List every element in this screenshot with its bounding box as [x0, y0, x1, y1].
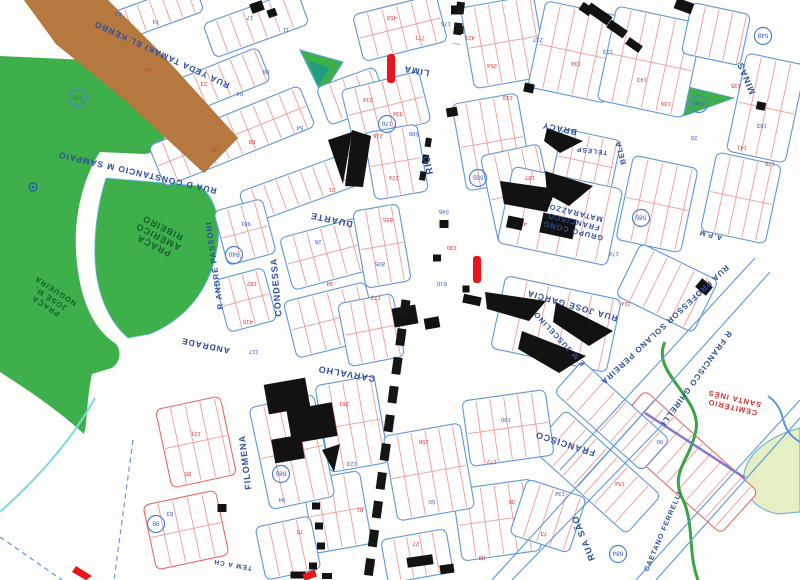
- building-footprint: [463, 286, 470, 293]
- block-id-badge: 548: [755, 28, 772, 45]
- building-footprint: [462, 294, 481, 307]
- block-id-number: 548: [757, 31, 769, 39]
- lot-number: 21: [328, 186, 336, 192]
- lot-number: 114: [620, 300, 631, 307]
- block-id-number: 685: [275, 469, 287, 477]
- area-label-cemiterio: CEMITÉRIOSANTA INÊS: [705, 388, 762, 418]
- lot-number: 187: [524, 174, 535, 181]
- lot-number: 81: [356, 506, 364, 512]
- lot-number: 20: [690, 134, 698, 140]
- lot-number: 123: [602, 48, 613, 55]
- lot-number: 47: [210, 146, 218, 152]
- city-block: [143, 490, 229, 570]
- lot-number: 216: [372, 132, 383, 139]
- lot-number: 50: [428, 498, 436, 504]
- lot-number: 175: [440, 20, 451, 27]
- lot-number: 123: [346, 460, 357, 467]
- lot-number: 224: [388, 174, 399, 181]
- lot-number: 154: [614, 480, 625, 487]
- building-footprint: [218, 504, 227, 512]
- street-label-andrade: ANDRADE: [180, 336, 230, 356]
- lot-number: 34: [326, 280, 334, 286]
- lot-number: 156: [418, 438, 429, 445]
- lot-number: 214: [362, 96, 373, 103]
- red-highlight-mark: [473, 256, 481, 283]
- lot-number: 415: [242, 318, 253, 325]
- lot-number: 178: [764, 160, 775, 167]
- lot-number: 217: [532, 36, 543, 43]
- lot-number: 54: [114, 10, 122, 16]
- street-label-filomena: FILOMENA: [237, 434, 254, 490]
- cadastral-map: 7759401765655851966856849854854741711692…: [0, 0, 800, 580]
- city-block: [462, 389, 554, 466]
- building-footprint: [446, 107, 458, 118]
- lot-number: 141: [736, 144, 747, 151]
- lot-number: 30: [508, 498, 516, 504]
- building-footprint: [440, 220, 449, 228]
- city-block: [155, 396, 236, 488]
- lot-number: 423: [464, 34, 475, 41]
- lot-number: 121: [190, 430, 201, 437]
- building-footprint: [315, 523, 323, 530]
- street-dashed-edge: [114, 440, 133, 580]
- cadastral-map-svg: 7759401765655851966856849854854741711692…: [0, 0, 800, 580]
- lot-number: 85: [184, 470, 192, 476]
- lot-number: 771: [414, 34, 425, 41]
- lot-number: 182: [246, 280, 257, 287]
- lot-number: 26: [314, 238, 322, 244]
- road-centerline-dashes: [456, 2, 461, 44]
- building-footprint: [312, 503, 320, 510]
- block-id-number: 585: [635, 213, 647, 221]
- lot-number: 334: [392, 110, 403, 117]
- building-footprint: [322, 573, 332, 579]
- street-dashed-edge: [0, 537, 62, 580]
- lot-number: 655: [382, 216, 393, 223]
- lot-number: 805: [374, 260, 385, 267]
- building-footprint: [309, 563, 317, 570]
- lot-number: 190: [500, 416, 511, 423]
- street-label-tem-a-ch: TEM A CH: [213, 558, 253, 572]
- lot-number: 08: [262, 68, 270, 74]
- lot-number: 163: [756, 122, 767, 129]
- lot-number: 70: [296, 528, 304, 534]
- lot-number: 11: [282, 26, 289, 32]
- city-block: [353, 204, 412, 289]
- lot-number: 88: [248, 138, 256, 144]
- red-highlight-mark: [387, 54, 395, 83]
- lot-number: 73: [540, 530, 548, 536]
- lot-number: 04: [236, 90, 244, 96]
- city-block: [383, 423, 475, 521]
- block-id-number: 176: [381, 119, 393, 127]
- lot-number: 174: [608, 250, 619, 257]
- lot-number: 143: [636, 76, 647, 83]
- lot-number: 610: [436, 280, 447, 287]
- lot-number: 261: [338, 400, 349, 407]
- red-highlight-mark: [72, 566, 92, 580]
- city-block: [255, 516, 321, 580]
- lot-number: 586: [408, 130, 419, 137]
- lot-number: 88: [478, 554, 486, 560]
- city-block: [616, 155, 698, 253]
- street-label-ghirelli: R FRANCISCO GHIRELLI: [659, 329, 734, 427]
- lot-number: 981: [240, 220, 251, 227]
- lot-number: 69: [144, 66, 152, 72]
- city-block: [352, 0, 447, 62]
- block-id-number: 940: [228, 250, 240, 258]
- park-island: [95, 178, 219, 338]
- lot-number: 139: [660, 100, 671, 107]
- building-footprint: [317, 543, 325, 550]
- lot-number: 54: [296, 124, 304, 130]
- block-id-number: 775: [72, 93, 84, 101]
- lot-number: 254: [486, 62, 497, 69]
- lot-number: 74: [152, 18, 160, 24]
- lot-number: 94: [278, 496, 286, 502]
- lot-number: 133: [502, 94, 513, 101]
- lot-number: 190: [446, 244, 457, 251]
- block-id-number: 684: [612, 549, 624, 557]
- map-marker-dot: [32, 186, 35, 189]
- lot-number: 173: [370, 294, 381, 301]
- lot-number: 134: [570, 60, 581, 67]
- lot-number: 17: [246, 14, 254, 20]
- building-footprint: [433, 255, 441, 262]
- lot-number: 90: [656, 438, 664, 444]
- building-footprint: [271, 435, 305, 464]
- block-id-number: 565: [472, 173, 484, 181]
- building-footprint: [674, 0, 695, 14]
- lot-number: 63: [166, 510, 174, 516]
- lot-number: 172: [486, 458, 497, 465]
- block-id-number: 196: [693, 99, 705, 107]
- lot-number: 135: [730, 82, 741, 89]
- lot-number: 546: [438, 208, 449, 215]
- building-footprint: [424, 316, 441, 329]
- lot-number: 134: [554, 490, 565, 497]
- city-block: [337, 293, 404, 367]
- lot-number: 453: [386, 14, 397, 21]
- block-id-badge: 684: [610, 546, 627, 563]
- lot-number: 27: [412, 540, 420, 546]
- block-id-number: 98: [152, 519, 160, 526]
- lot-number: 117: [248, 348, 259, 355]
